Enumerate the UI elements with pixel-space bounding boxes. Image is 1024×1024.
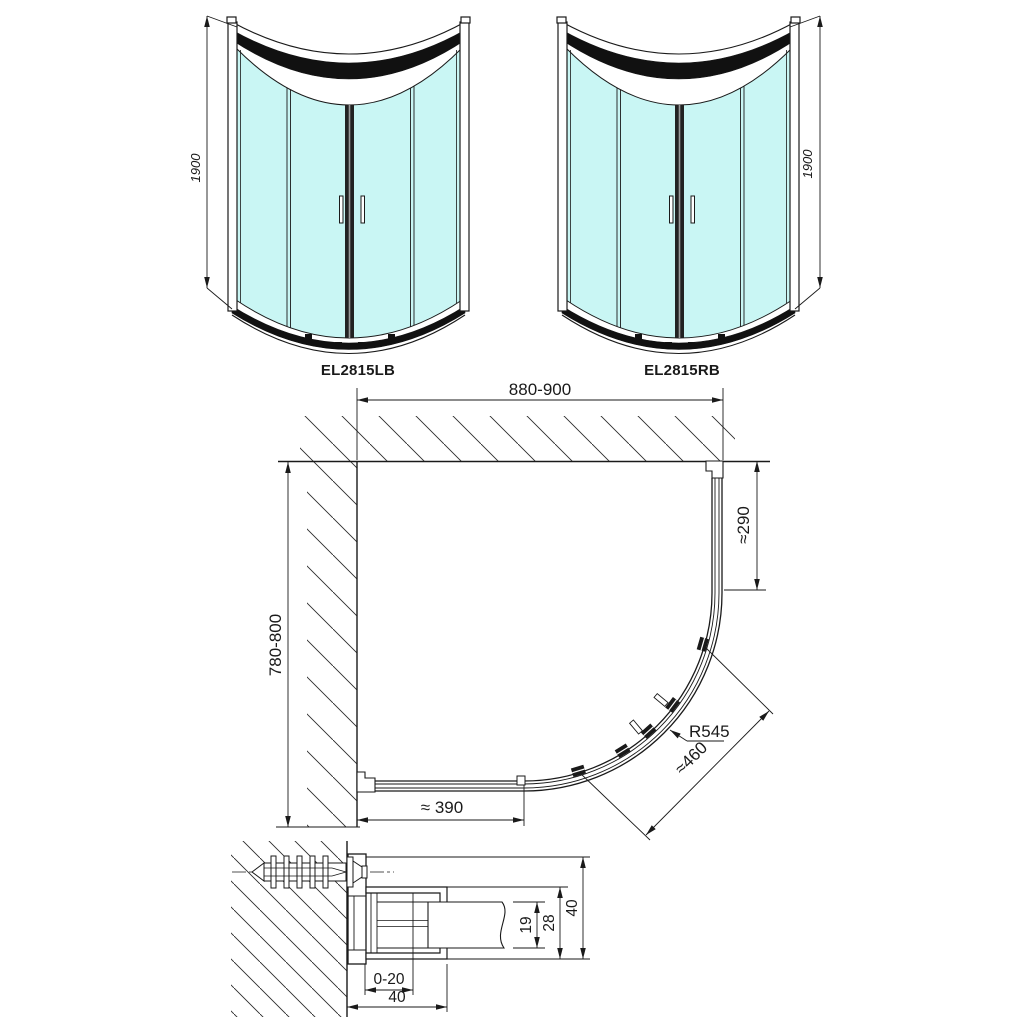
door-profile-section (366, 887, 505, 959)
plan-arc-dim: ≈460 (671, 738, 711, 778)
glass-plan-lines (370, 478, 722, 791)
front-view-right: 1900 EL2815RB (557, 16, 820, 379)
height-value-left: 1900 (188, 153, 203, 183)
plan-width-dim: 880-900 (509, 380, 571, 399)
model-label-right: EL2815RB (644, 362, 720, 379)
section-detail: 19 28 40 0-20 40 (231, 841, 590, 1017)
wall-bracket-bottom-left (357, 772, 375, 792)
plan-view: 880-900 780-800 ≈290 R545 ≈460 ≈ 390 (266, 380, 773, 840)
wall-hatch-left (307, 462, 357, 827)
section-glass-slot-dim: 19 (518, 916, 535, 933)
height-value-right: 1900 (800, 149, 815, 179)
section-profile-depth-dim: 40 (564, 899, 581, 917)
section-adjustment-dim: 0-20 (373, 971, 404, 988)
plan-radius-dim: R545 (689, 722, 730, 741)
technical-drawing-page: 1900 EL2815LB 1900 EL2815RB (0, 0, 1024, 1024)
plan-right-offset-dim: ≈290 (734, 506, 753, 544)
wall-profile-section (347, 854, 367, 964)
wall-hatch-top (300, 416, 735, 461)
section-profile-width-dim: 40 (388, 989, 406, 1006)
section-frame-inner-dim: 28 (541, 914, 558, 931)
front-view-left: 1900 EL2815LB (188, 16, 470, 379)
door-edge-cap (517, 776, 525, 785)
plan-opening-dim: ≈ 390 (421, 798, 463, 817)
plan-depth-dim: 780-800 (266, 614, 285, 676)
wall-bracket-top-right (706, 461, 723, 478)
model-label-left: EL2815LB (321, 362, 395, 379)
shower-enclosure-drawing: 1900 EL2815LB 1900 EL2815RB (0, 0, 1024, 1024)
glass-section (428, 902, 505, 948)
